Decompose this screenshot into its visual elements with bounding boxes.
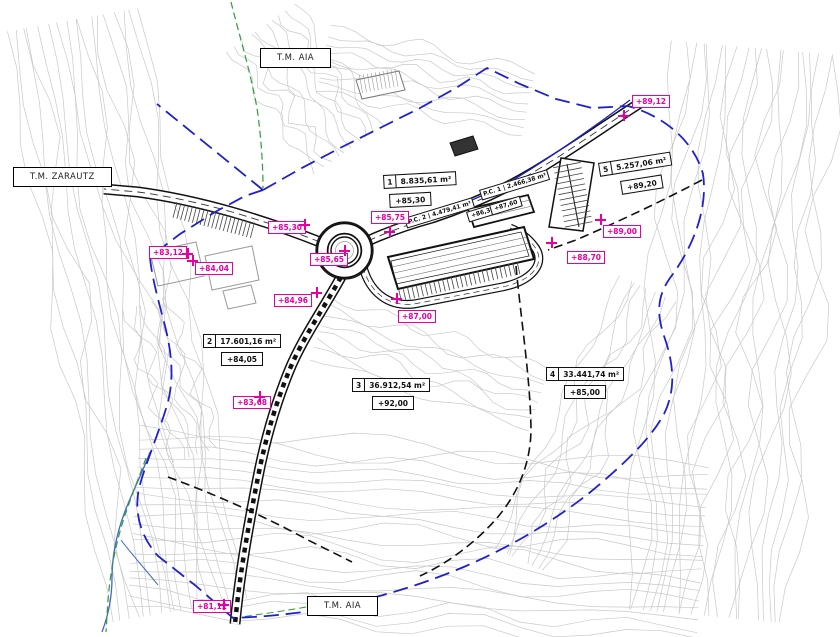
parcel-elevation: +84,05 — [221, 352, 263, 366]
elevation-label: +85,75 — [371, 211, 409, 224]
parcel-area: 17.601,16 m² — [216, 335, 280, 347]
parcel-area: 33.441,74 m² — [559, 368, 623, 380]
elevation-label: +84,04 — [195, 262, 233, 275]
elevation-label: +83,68 — [233, 396, 271, 409]
parcel-elevation: +85,00 — [564, 385, 606, 399]
parcel-number: 1 — [384, 175, 397, 188]
elevation-cross-icon — [187, 255, 198, 266]
parcel-label: 2 17.601,16 m² — [203, 334, 281, 348]
parcel-area: 36.912,54 m² — [365, 379, 429, 391]
elevation-cross-icon — [391, 293, 402, 304]
parcel-area: 8.835,61 m² — [396, 172, 455, 187]
elevation-cross-icon — [218, 599, 229, 610]
elevation-cross-icon — [595, 214, 606, 225]
elevation-cross-icon — [339, 245, 350, 256]
parcel-number: 3 — [353, 379, 365, 391]
site-plan-canvas: T.M. AIA T.M. ZARAUTZ T.M. AIA +89,12 +8… — [0, 0, 840, 637]
elevation-cross-icon — [311, 287, 322, 298]
municipality-box-bottom: T.M. AIA — [307, 596, 378, 616]
municipality-box-top: T.M. AIA — [260, 48, 331, 68]
elevation-label: +88,70 — [567, 251, 605, 264]
parcel-number: 2 — [204, 335, 216, 347]
elevation-cross-icon — [546, 237, 557, 248]
parcel-number: 4 — [547, 368, 559, 380]
elevation-cross-icon — [618, 110, 629, 121]
elevation-cross-icon — [384, 226, 395, 237]
elevation-label: +89,12 — [632, 95, 670, 108]
parcel-label: 4 33.441,74 m² — [546, 367, 624, 381]
elevation-label: +87,00 — [398, 310, 436, 323]
parcel-elevation: +85,30 — [389, 192, 432, 208]
municipality-box-left: T.M. ZARAUTZ — [13, 167, 112, 187]
elevation-cross-icon — [254, 391, 265, 402]
elevation-label: +89,00 — [603, 225, 641, 238]
elevation-cross-icon — [299, 219, 310, 230]
parcel-elevation: +92,00 — [372, 396, 414, 410]
elevation-label: +84,96 — [274, 294, 312, 307]
parcel-label: 3 36.912,54 m² — [352, 378, 430, 392]
